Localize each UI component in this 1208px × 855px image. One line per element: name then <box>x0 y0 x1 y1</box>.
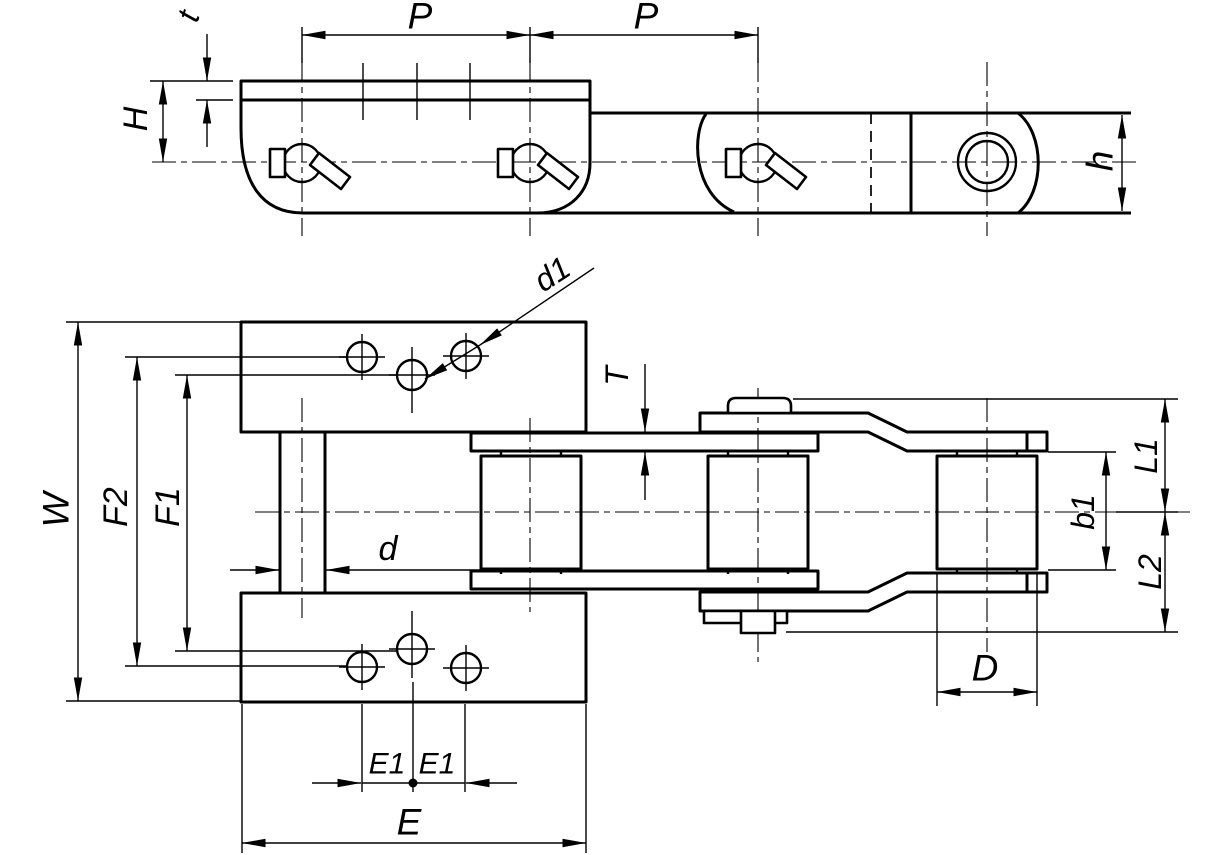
dim-label-hole-spacing-right: E1 <box>419 748 456 781</box>
dim-F1: F1 <box>149 375 396 651</box>
dim-label-plate-thickness: T <box>599 364 635 386</box>
inner-plate-lower <box>471 571 818 589</box>
dimension-origin-dot <box>409 779 418 788</box>
cotter-pin-leg <box>538 153 578 189</box>
link-plate-end-arc <box>1018 113 1038 213</box>
dim-P1: P <box>302 0 530 63</box>
dim-h: h <box>1080 115 1123 211</box>
dim-label-pin-length-1: L1 <box>1128 438 1164 474</box>
cotter-pin-head <box>270 149 285 177</box>
attachment-holes-top <box>339 333 489 413</box>
dim-b1: b1 <box>1048 452 1116 570</box>
dim-label-hole-span-outer: F2 <box>97 487 135 527</box>
cranked-plate-upper <box>700 413 1047 451</box>
dim-H: H <box>117 81 163 162</box>
dim-label-plate-length: E <box>397 802 423 843</box>
dim-d: d <box>230 530 506 570</box>
drawing-canvas: P P t H h <box>0 0 1208 855</box>
pin-with-cotter <box>726 144 806 189</box>
dim-W: W <box>36 322 241 701</box>
dim-label-overall-width: W <box>36 489 77 527</box>
cranked-plate-lower <box>700 573 1047 611</box>
dim-label-attachment-height: H <box>117 106 155 131</box>
cotter-pin-leg <box>766 153 806 189</box>
pin-with-cotter <box>270 144 350 189</box>
dim-P2: P <box>530 0 758 63</box>
pin-with-cotter <box>498 144 578 189</box>
plan-view: W F2 F1 d T <box>36 249 1191 853</box>
dim-label-hole-span-inner: F1 <box>149 487 187 527</box>
dim-label-plate-offset: t <box>170 5 207 26</box>
dim-E: E <box>242 704 586 853</box>
pin-head-top <box>728 398 791 413</box>
cotter-pin-head <box>726 149 741 177</box>
dim-label-pitch-1: P <box>408 0 433 37</box>
dim-label-pin-length-2: L2 <box>1132 554 1168 590</box>
dim-label-roller-diameter: D <box>972 648 999 689</box>
pin-end-bottom <box>741 611 775 633</box>
chain-technical-drawing: P P t H h <box>0 0 1208 855</box>
dim-label-inner-width: b1 <box>1065 494 1101 530</box>
attachment-plate-top <box>241 322 586 432</box>
dim-E1-pair: E1 E1 <box>312 682 517 792</box>
inner-plate-upper <box>471 433 818 451</box>
dim-label-pin-diameter: d <box>379 530 399 568</box>
dim-label-hole-spacing-left: E1 <box>369 748 406 781</box>
dim-label-hole-diameter: d1 <box>527 249 576 299</box>
cotter-pin-head <box>498 149 513 177</box>
dim-label-plate-height: h <box>1080 151 1121 172</box>
side-view: P P t H h <box>117 0 1140 236</box>
cotter-pin-leg <box>310 153 350 189</box>
dim-label-pitch-2: P <box>634 0 659 37</box>
